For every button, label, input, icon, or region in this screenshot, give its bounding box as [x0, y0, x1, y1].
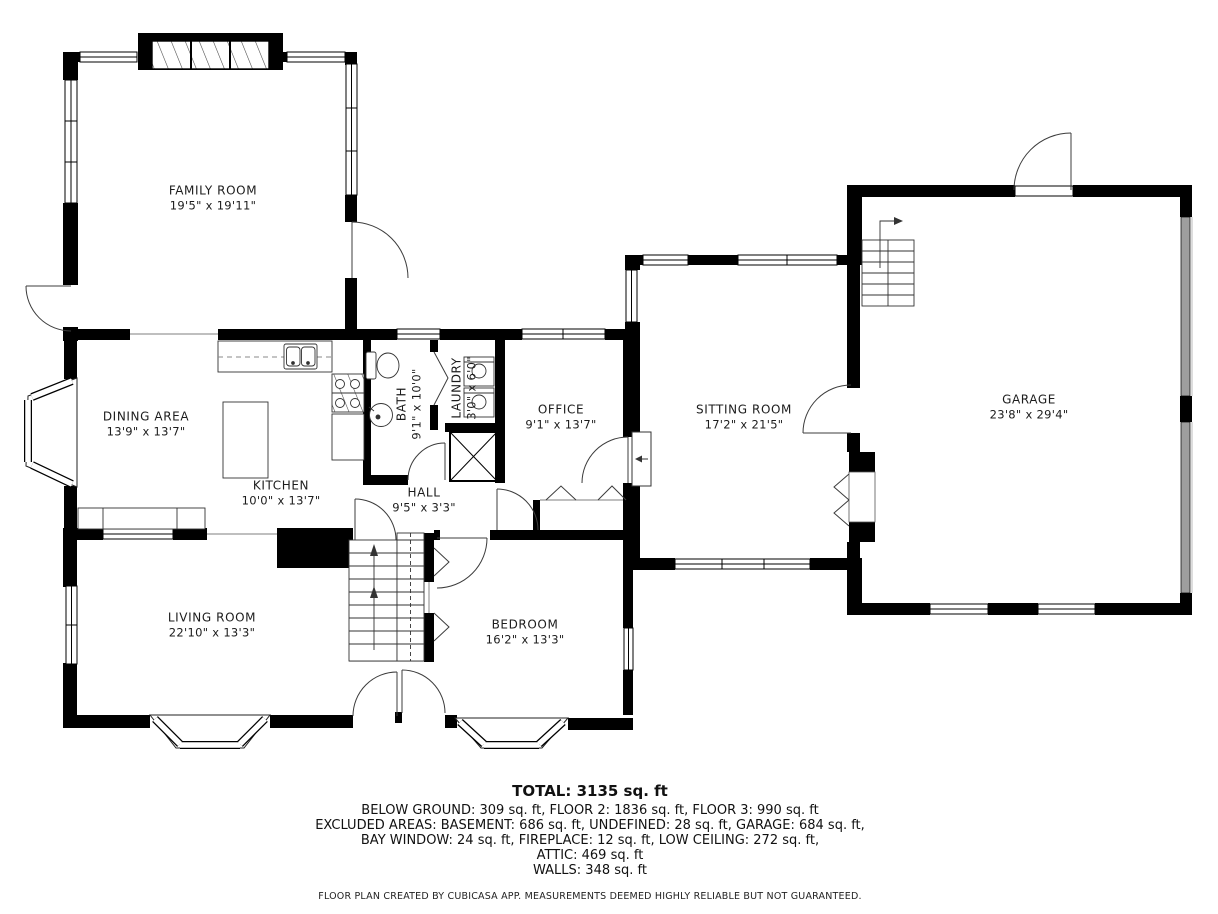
summary-line: BELOW GROUND: 309 sq. ft, FLOOR 2: 1836 … — [140, 803, 1040, 818]
kitchen-counter-side — [332, 414, 364, 460]
bedroom-closet-bifold-icon — [434, 548, 449, 576]
room-dims: 9'1" x 10'0" — [410, 368, 424, 439]
room-name: GARAGE — [990, 393, 1069, 407]
stairs-garage-icon — [862, 217, 914, 306]
room-name: HALL — [392, 486, 456, 500]
window-seat — [78, 508, 205, 529]
room-dims: 9'1" x 13'7" — [525, 418, 596, 432]
sitting-closet-bifold-icon — [834, 474, 849, 500]
room-name: BATH — [395, 368, 409, 439]
office-closet-bifold-icon — [598, 486, 626, 500]
room-label-dining-area: DINING AREA 13'9" x 13'7" — [103, 410, 189, 439]
cooktop-icon — [332, 374, 364, 412]
area-summary: TOTAL: 3135 sq. ft BELOW GROUND: 309 sq.… — [140, 782, 1040, 902]
disclaimer-text: FLOOR PLAN CREATED BY CUBICASA APP. MEAS… — [140, 891, 1040, 902]
room-label-living-room: LIVING ROOM 22'10" x 13'3" — [168, 611, 256, 640]
room-dims: 3'0" x 6'0" — [465, 356, 479, 420]
chimney — [277, 528, 353, 568]
hall-door — [497, 489, 538, 530]
kitchen-stairs-door — [355, 499, 396, 540]
summary-line: EXCLUDED AREAS: BASEMENT: 686 sq. ft, UN… — [140, 818, 1040, 833]
room-name: LIVING ROOM — [168, 611, 256, 625]
office-door — [582, 437, 628, 483]
room-dims: 19'5" x 19'11" — [169, 199, 257, 213]
bedroom-door — [437, 538, 487, 588]
office-closet-bifold-icon — [546, 486, 576, 500]
total-area: TOTAL: 3135 sq. ft — [140, 782, 1040, 800]
room-label-kitchen: KITCHEN 10'0" x 13'7" — [242, 479, 321, 508]
family-room-door — [352, 222, 408, 278]
kitchen-island — [223, 402, 268, 478]
landing-door-left — [353, 672, 397, 716]
floor-plan-drawing — [0, 0, 1218, 914]
room-name: DINING AREA — [103, 410, 189, 424]
laundry-bifold-icon — [434, 352, 448, 405]
bedroom-closet-bifold-icon — [434, 613, 449, 641]
room-name: LAUNDRY — [450, 356, 464, 420]
fireplace-icon — [138, 33, 283, 70]
landing-door-right — [402, 670, 445, 713]
room-label-garage: GARAGE 23'8" x 29'4" — [990, 393, 1069, 422]
bath-door — [408, 443, 445, 480]
room-dims: 23'8" x 29'4" — [990, 408, 1069, 422]
stairs-main-icon — [349, 533, 424, 661]
room-dims: 9'5" x 3'3" — [392, 501, 456, 515]
understairs-closet — [849, 472, 875, 522]
bath-sink-icon — [369, 404, 393, 427]
room-dims: 22'10" x 13'3" — [168, 626, 256, 640]
room-name: OFFICE — [525, 403, 596, 417]
room-label-hall: HALL 9'5" x 3'3" — [392, 486, 456, 515]
room-name: FAMILY ROOM — [169, 184, 257, 198]
room-dims: 16'2" x 13'3" — [486, 633, 565, 647]
room-dims: 17'2" x 21'5" — [696, 418, 792, 432]
kitchen-sink-icon — [284, 344, 317, 369]
room-label-office: OFFICE 9'1" x 13'7" — [525, 403, 596, 432]
sitting-closet-bifold-icon — [834, 500, 849, 526]
fireplace-icon-sitting — [632, 432, 651, 486]
room-label-bedroom: BEDROOM 16'2" x 13'3" — [486, 618, 565, 647]
room-name: KITCHEN — [242, 479, 321, 493]
room-label-sitting-room: SITTING ROOM 17'2" x 21'5" — [696, 403, 792, 432]
closet-x-box — [450, 425, 497, 481]
room-name: SITTING ROOM — [696, 403, 792, 417]
floor-plan: FAMILY ROOM 19'5" x 19'11" DINING AREA 1… — [0, 0, 1218, 914]
room-dims: 10'0" x 13'7" — [242, 494, 321, 508]
room-label-family-room: FAMILY ROOM 19'5" x 19'11" — [169, 184, 257, 213]
room-name: BEDROOM — [486, 618, 565, 632]
summary-line: WALLS: 348 sq. ft — [140, 863, 1040, 878]
room-dims: 13'9" x 13'7" — [103, 425, 189, 439]
summary-line: BAY WINDOW: 24 sq. ft, FIREPLACE: 12 sq.… — [140, 833, 1040, 848]
sitting-room-door — [803, 385, 851, 433]
garage-entry-door — [1014, 133, 1071, 190]
summary-line: ATTIC: 469 sq. ft — [140, 848, 1040, 863]
room-label-laundry: LAUNDRY 3'0" x 6'0" — [450, 356, 479, 420]
front-door — [26, 286, 71, 331]
room-label-bath: BATH 9'1" x 10'0" — [395, 368, 424, 439]
